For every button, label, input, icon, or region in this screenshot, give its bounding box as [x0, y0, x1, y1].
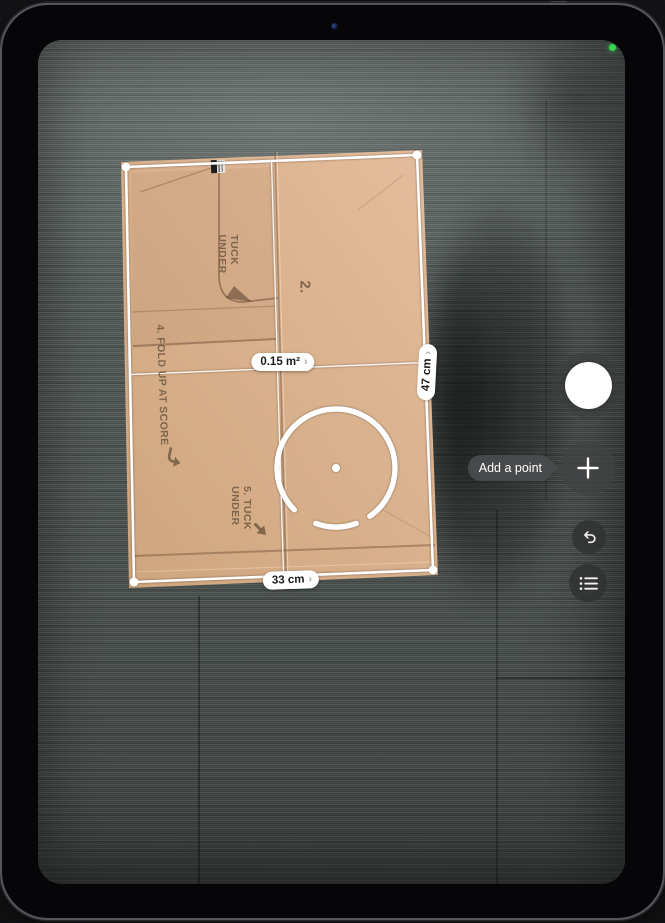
shutter-circle-icon — [565, 362, 612, 409]
area-value: 0.15 m² — [260, 356, 300, 368]
undo-arrow-icon — [581, 529, 598, 546]
shutter-button[interactable] — [555, 352, 621, 418]
chevron-right-icon: › — [308, 573, 312, 585]
reticle-center-dot — [332, 464, 340, 472]
measure-vertex-dot[interactable] — [429, 566, 438, 575]
measure-vertex-dot[interactable] — [413, 151, 422, 160]
camera-viewfinder[interactable]: TUCKUNDER 2. 4. FOLD UP AT SCORE 5. TUCK… — [38, 40, 625, 884]
area-measurement-pill[interactable]: 0.15 m² › — [251, 353, 314, 371]
ipad-device: TUCKUNDER 2. 4. FOLD UP AT SCORE 5. TUCK… — [0, 0, 665, 923]
measure-vertex-dot[interactable] — [122, 163, 131, 172]
measure-vertex-dot[interactable] — [130, 578, 139, 587]
front-camera-icon — [331, 23, 338, 30]
add-point-button[interactable] — [561, 441, 615, 495]
height-measurement-pill[interactable]: 47 cm › — [417, 343, 438, 400]
width-measurement-pill[interactable]: 33 cm › — [263, 570, 320, 590]
plus-icon — [576, 456, 600, 480]
add-point-tooltip: Add a point — [468, 455, 553, 481]
undo-button[interactable] — [572, 520, 606, 554]
chevron-right-icon: › — [422, 351, 434, 355]
list-icon — [579, 576, 598, 591]
chevron-right-icon: › — [304, 356, 308, 368]
width-value: 33 cm — [272, 574, 305, 587]
box-flap — [131, 167, 276, 348]
measurement-list-button[interactable] — [569, 564, 607, 602]
camera-active-indicator-icon — [609, 44, 616, 51]
height-value: 47 cm — [420, 358, 434, 391]
